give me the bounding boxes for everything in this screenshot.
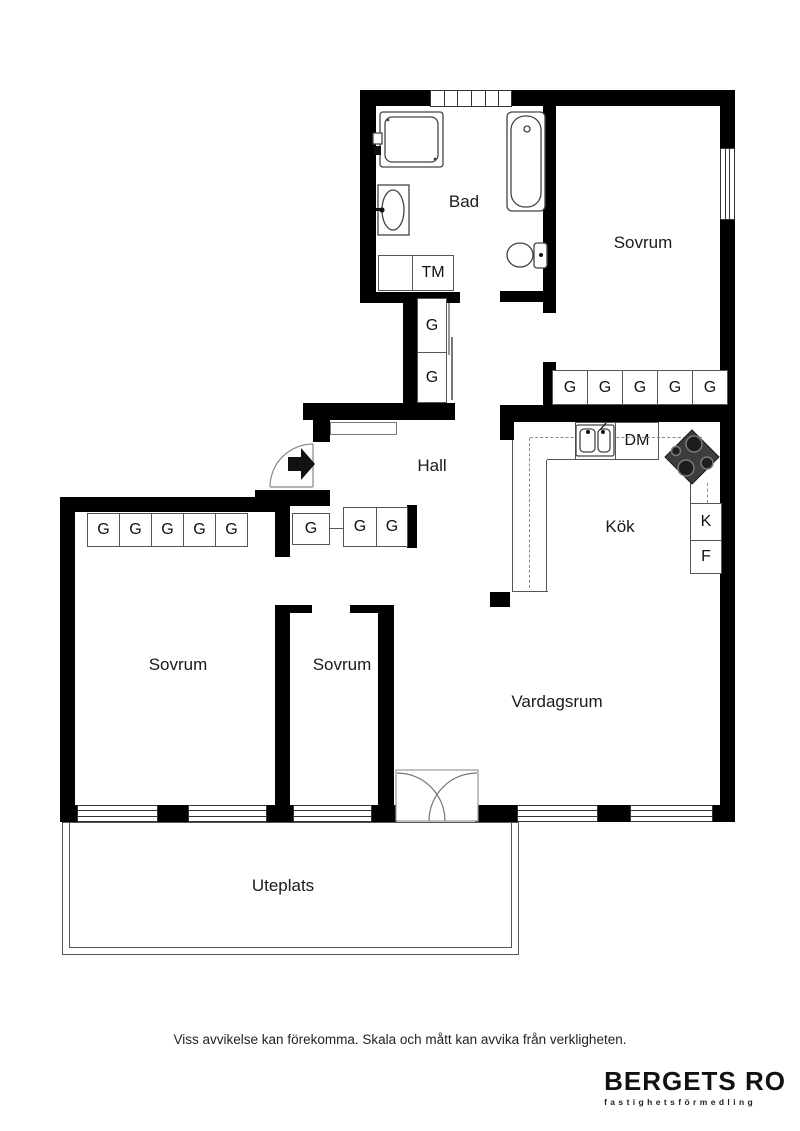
fixtures-layer: [0, 0, 800, 1131]
toilet: [507, 243, 547, 268]
room-label-sovrum-right: Sovrum: [614, 233, 673, 253]
floor-plan-page: G G G G G G G G G G G G G G G TM DM K F: [0, 0, 800, 1131]
room-label-kok: Kök: [605, 517, 634, 537]
room-label-bad: Bad: [449, 192, 479, 212]
room-label-sovrum-left: Sovrum: [149, 655, 208, 675]
room-label-uteplats: Uteplats: [252, 876, 314, 896]
stove: [665, 430, 719, 484]
brand-name: BERGETS RO: [604, 1067, 786, 1096]
french-doors: [396, 770, 478, 821]
room-label-vardagsrum: Vardagsrum: [511, 692, 602, 712]
brand-tagline: fastighetsförmedling: [604, 1097, 786, 1107]
bathroom-sink: [376, 185, 409, 235]
disclaimer-text: Viss avvikelse kan förekomma. Skala och …: [0, 1032, 800, 1047]
room-label-sovrum-mid: Sovrum: [313, 655, 372, 675]
bathtub: [507, 112, 545, 211]
entry-door: [270, 444, 315, 487]
shower: [373, 112, 443, 167]
entrance-arrow-icon: [288, 448, 315, 480]
kitchen-sink: [576, 423, 614, 456]
room-label-hall: Hall: [417, 456, 446, 476]
brand-logo: BERGETS RO fastighetsförmedling: [604, 1067, 786, 1107]
